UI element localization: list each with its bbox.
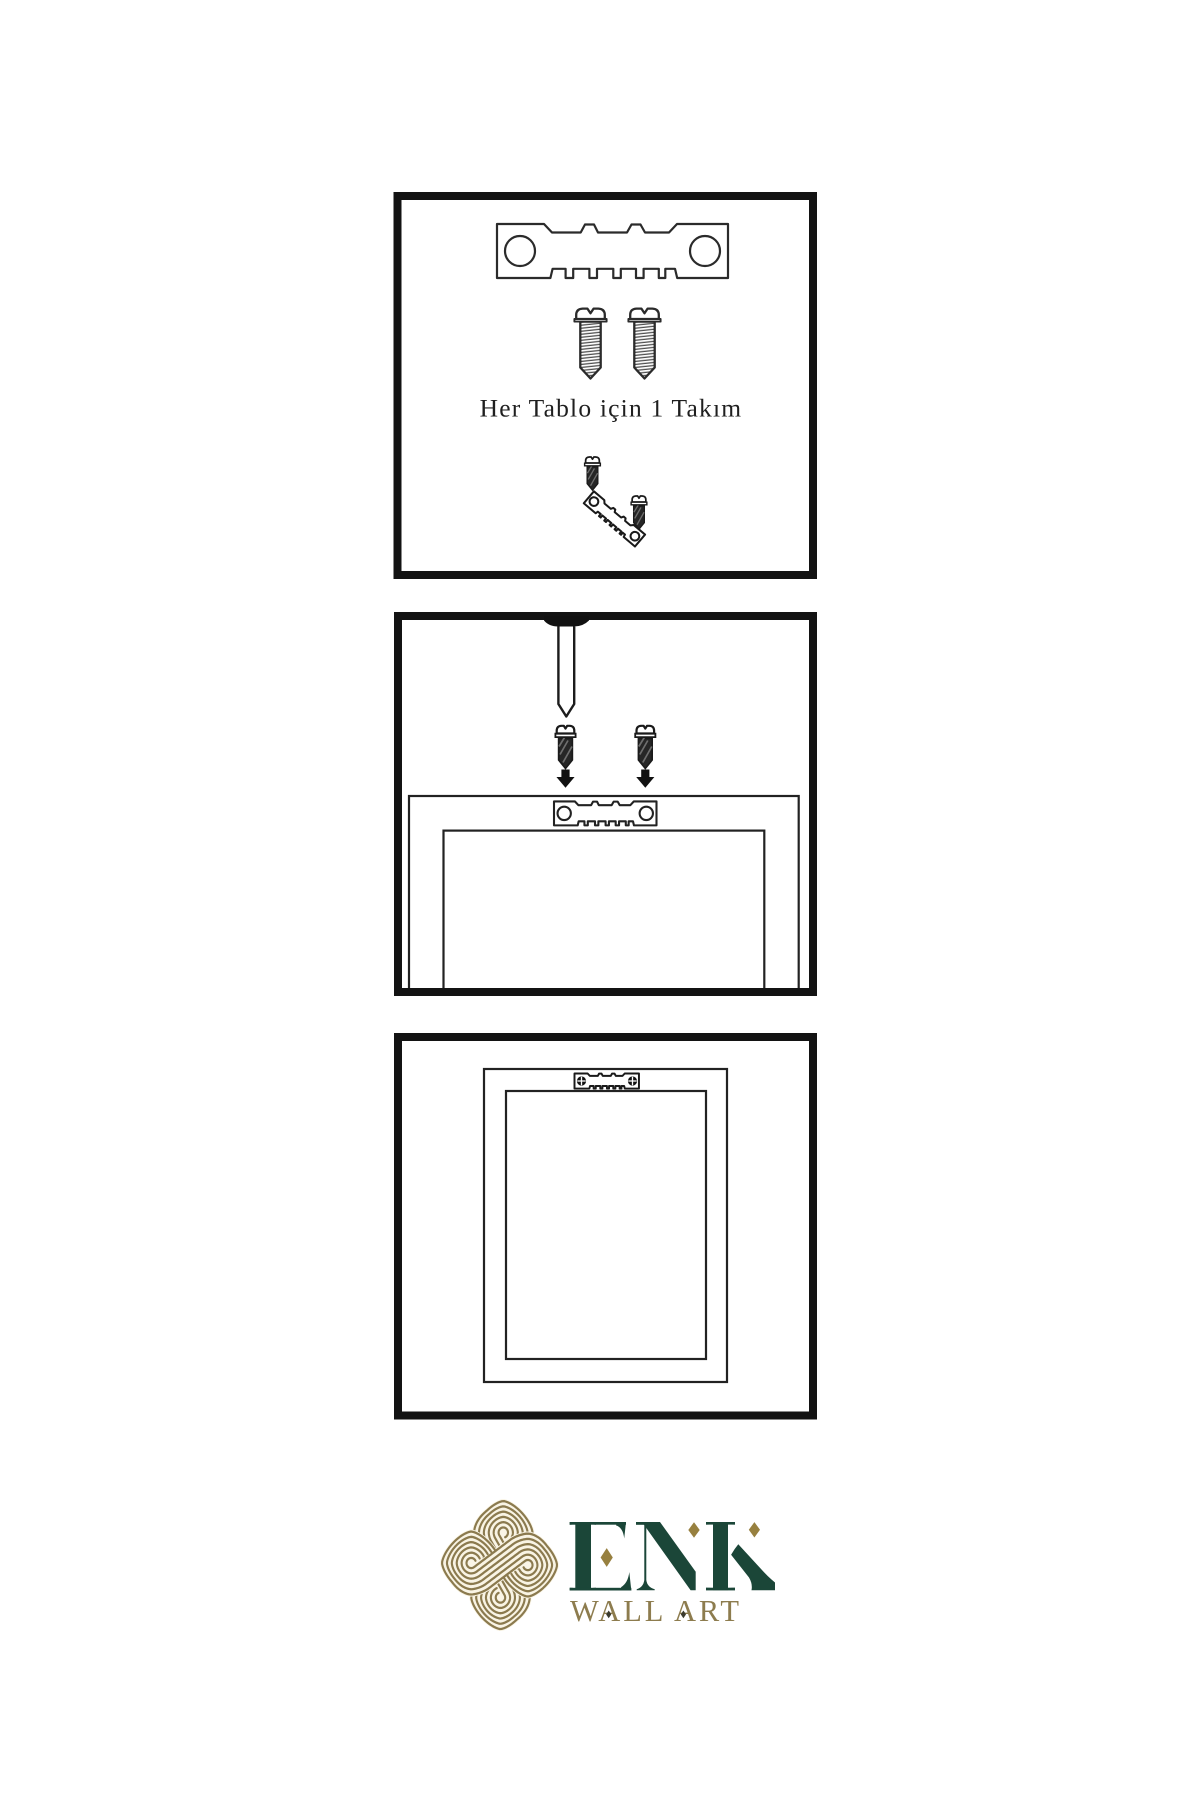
svg-text:Her Tablo için 1 Takım: Her Tablo için 1 Takım bbox=[480, 394, 743, 423]
svg-text:WALL ART: WALL ART bbox=[570, 1594, 742, 1628]
